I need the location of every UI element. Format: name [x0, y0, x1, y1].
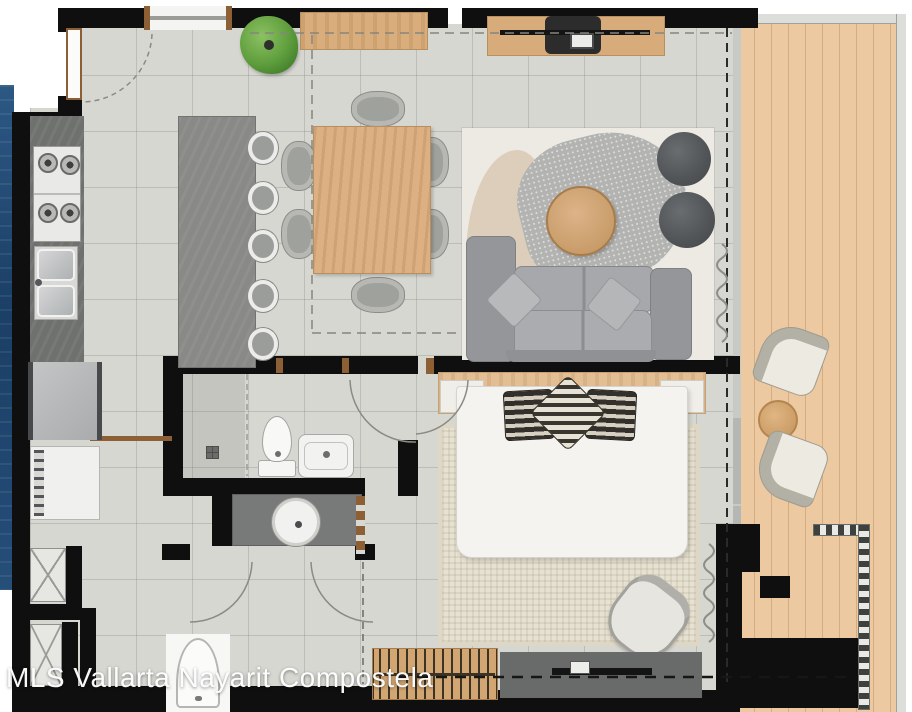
sofa-arm-right — [650, 268, 692, 360]
window-top — [144, 6, 232, 30]
stove-burner — [60, 155, 80, 175]
kitchen-island — [178, 116, 256, 368]
stove-burner — [38, 153, 58, 173]
terrace-frame-top — [737, 14, 906, 24]
wall-closet-a — [66, 546, 82, 608]
glass-railing-vertical — [858, 524, 870, 710]
wall-vanity-west — [212, 478, 234, 546]
bathroom-sink — [298, 434, 354, 478]
wall-bathroom-east — [398, 440, 418, 496]
sliding-door-panel — [733, 418, 741, 504]
stove-divider — [34, 193, 80, 195]
sink-basin — [37, 285, 75, 317]
sofa-front-edge — [506, 350, 656, 362]
sink-basin — [37, 249, 75, 281]
dining-chair — [282, 210, 316, 258]
bar-stool — [248, 230, 278, 262]
washing-machine — [30, 446, 100, 520]
dining-chair — [282, 142, 316, 190]
bar-stool — [248, 182, 278, 214]
powder-toilet-drain — [195, 696, 202, 701]
louver-door — [356, 496, 365, 554]
plant-pot-center — [264, 40, 274, 50]
bar-stool — [248, 328, 278, 360]
gas-stove — [33, 146, 81, 242]
door-post — [276, 358, 283, 373]
remote-tray — [570, 661, 590, 674]
bar-stool — [248, 280, 278, 312]
laundry-threshold — [90, 436, 172, 441]
entry-door — [66, 28, 82, 100]
terrace-frame-right — [896, 14, 906, 712]
vanity-drain — [295, 521, 302, 528]
stove-burner — [38, 203, 58, 223]
shower-floor — [183, 374, 245, 478]
washer-controls — [34, 450, 44, 516]
wall-closet-b — [28, 604, 82, 620]
kitchen-sink — [34, 246, 78, 320]
vanity-sink — [272, 498, 320, 546]
refrigerator — [28, 362, 102, 440]
bedroom-tv — [552, 668, 652, 675]
dining-chair — [352, 92, 404, 126]
door-post — [342, 358, 349, 373]
potted-plant — [240, 16, 298, 74]
sink-faucet — [323, 451, 330, 458]
shower-drain — [206, 446, 219, 459]
storage-closet — [30, 548, 66, 602]
bar-stool — [248, 132, 278, 164]
toilet-tank — [258, 460, 296, 477]
media-player — [570, 33, 594, 49]
pouf — [657, 132, 711, 186]
sideboard — [300, 12, 428, 50]
dining-chair — [352, 278, 404, 312]
watermark: MLS Vallarta Nayarit Compostela — [6, 662, 433, 694]
apartment-floor-plan: MLS Vallarta Nayarit Compostela — [0, 0, 912, 712]
dining-table — [313, 126, 431, 274]
terrace-column — [760, 576, 790, 598]
toilet-bowl — [262, 416, 292, 462]
bedroom-desk — [500, 652, 702, 698]
sink-faucet — [35, 279, 42, 286]
wall-block-bottom-right — [716, 638, 864, 708]
stove-burner — [60, 203, 80, 223]
door-post — [426, 358, 434, 374]
wall-hall-stub-west — [162, 544, 190, 560]
sofa — [466, 236, 692, 364]
wall-bedroom-terrace-a — [716, 524, 760, 572]
toilet-flush-dot — [275, 451, 281, 457]
wall-bathroom-west — [163, 356, 183, 496]
